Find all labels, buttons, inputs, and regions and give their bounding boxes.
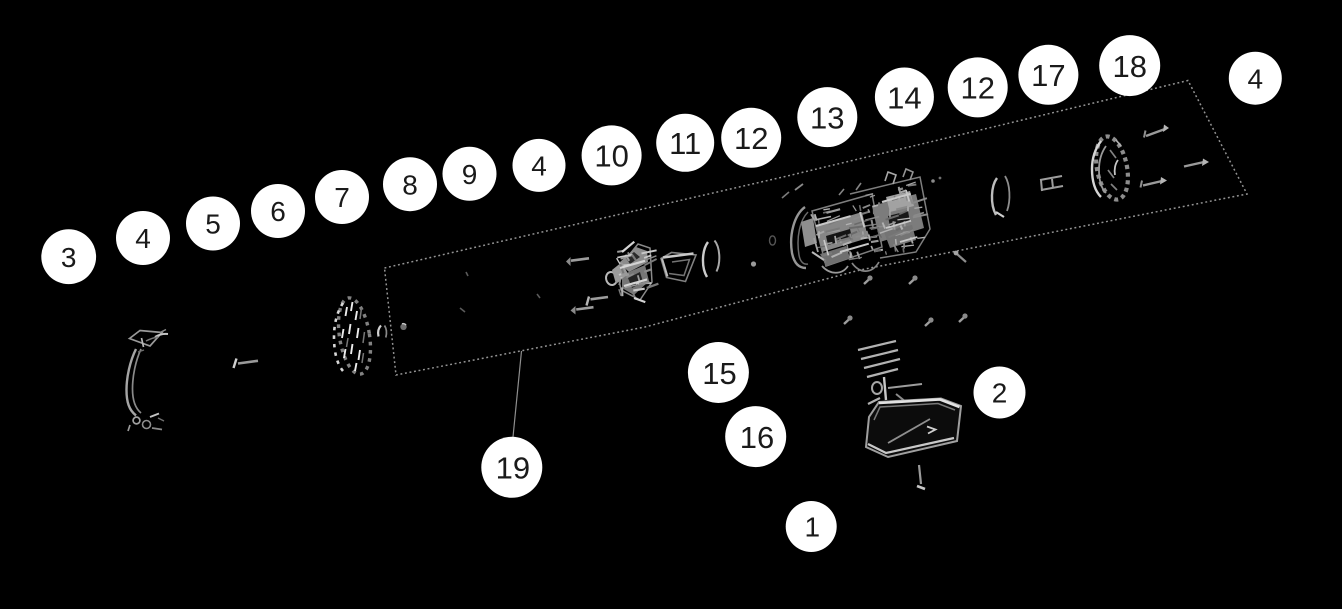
svg-text:19: 19 (496, 451, 530, 486)
svg-text:4: 4 (531, 151, 547, 182)
svg-text:1: 1 (805, 512, 821, 543)
svg-text:8: 8 (402, 169, 418, 200)
svg-text:12: 12 (734, 121, 768, 156)
svg-text:4: 4 (135, 223, 151, 254)
svg-text:2: 2 (992, 378, 1008, 409)
svg-text:6: 6 (270, 196, 286, 227)
svg-text:14: 14 (887, 80, 921, 115)
svg-text:3: 3 (61, 242, 77, 273)
svg-text:5: 5 (205, 209, 221, 240)
svg-text:13: 13 (810, 100, 844, 135)
svg-text:7: 7 (334, 182, 350, 213)
svg-text:12: 12 (960, 71, 994, 106)
svg-text:16: 16 (740, 420, 774, 455)
svg-text:10: 10 (594, 139, 628, 174)
svg-text:17: 17 (1031, 58, 1065, 93)
svg-text:18: 18 (1112, 49, 1146, 84)
svg-text:9: 9 (462, 159, 478, 190)
svg-text:4: 4 (1248, 63, 1264, 94)
svg-text:15: 15 (702, 356, 736, 391)
svg-text:11: 11 (669, 126, 701, 161)
